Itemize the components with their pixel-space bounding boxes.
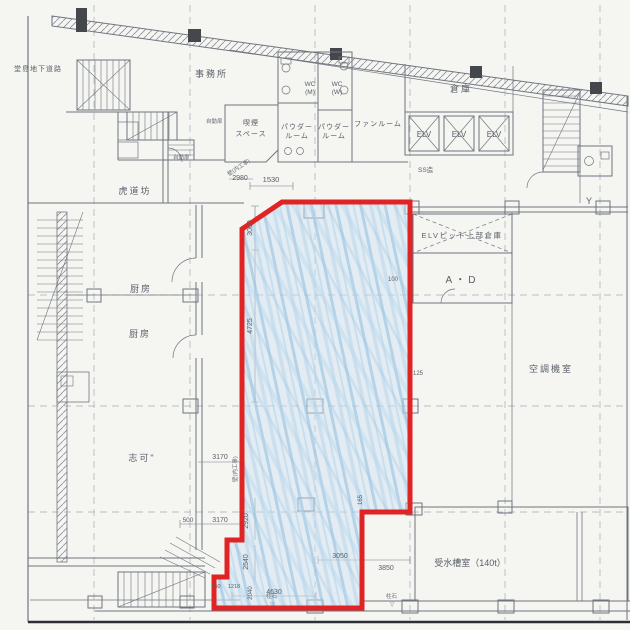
dim-1218: 1218 xyxy=(228,584,240,590)
dim-2980: 2980 xyxy=(232,175,248,182)
room-label-dojima: 堂島地下道路 xyxy=(14,64,62,73)
dim-3850: 3850 xyxy=(378,565,394,572)
dim-2040: 2040 xyxy=(248,586,254,600)
room-label-wc-m-2: (M) xyxy=(305,89,315,96)
grid-marker-y: Y xyxy=(586,196,592,206)
elv-label-2: ELV xyxy=(452,130,467,139)
floorplan-sheet: 堂島地下道路 事務所 喫煙 スペース パウダー ルーム パウダー ルーム WC … xyxy=(0,0,630,630)
room-label-wc-w-1: WC xyxy=(332,81,343,88)
dim-3000: 3000 xyxy=(247,220,254,236)
floorplan-drawing: 堂島地下道路 事務所 喫煙 スペース パウダー ルーム パウダー ルーム WC … xyxy=(0,0,630,630)
dim-100: 100 xyxy=(388,277,399,283)
room-label-ad: A・D xyxy=(446,275,479,286)
dim-2540: 2540 xyxy=(243,554,250,570)
dim-500: 500 xyxy=(183,517,194,524)
room-label-wc-m-1: WC xyxy=(305,81,316,88)
room-label-hvac: 空調機室 xyxy=(529,363,573,374)
room-label-smoking-2: スペース xyxy=(235,130,266,138)
dim-3050: 3050 xyxy=(332,553,348,560)
room-label-wc-w-2: (W) xyxy=(332,89,342,96)
dim-4630: 4630 xyxy=(266,589,282,596)
room-label-office: 事務所 xyxy=(195,68,228,79)
annotation-pillar-2: 柱石 xyxy=(386,592,398,600)
room-label-powder2-2: ルーム xyxy=(322,132,346,140)
annotation-ss: SS造 xyxy=(418,165,434,174)
annotation-wall-note-2: 壁(内工事) xyxy=(231,456,239,482)
room-label-smoking-1: 喫煙 xyxy=(243,118,259,127)
room-label-torado: 虎道坊 xyxy=(118,185,151,196)
room-label-kitchen-2: 厨房 xyxy=(129,328,151,339)
room-label-kitchen-1: 厨房 xyxy=(130,283,152,294)
dim-650: 650 xyxy=(211,584,220,590)
room-label-elv-pit: ELVピット上部倉庫 xyxy=(421,230,502,240)
room-label-powder1-1: パウダー xyxy=(281,122,313,131)
annotation-auto-door-2: 自動扉 xyxy=(173,153,190,161)
room-label-warehouse: 倉庫 xyxy=(450,83,472,94)
dim-165: 165 xyxy=(358,494,364,505)
elv-label-3: ELV xyxy=(487,130,502,139)
dim-3170-b: 3170 xyxy=(212,517,228,524)
dim-1530: 1530 xyxy=(263,175,280,184)
dim-125: 125 xyxy=(413,371,424,377)
room-label-powder2-1: パウダー xyxy=(318,122,350,131)
dim-4725: 4725 xyxy=(247,318,254,334)
lease-area xyxy=(214,202,410,608)
room-label-powder1-2: ルーム xyxy=(285,132,309,140)
room-label-shika: 志可" xyxy=(128,452,155,463)
dim-2920: 2920 xyxy=(243,513,250,529)
annotation-pillar-triangle-2: ▽ xyxy=(390,602,395,608)
room-label-water-tank: 受水槽室（140t） xyxy=(434,557,506,568)
elv-label-1: ELV xyxy=(417,130,432,139)
dim-3170-a: 3170 xyxy=(212,454,228,461)
annotation-auto-door-1: 自動扉 xyxy=(206,117,223,125)
room-label-fanroom: ファンルーム xyxy=(354,120,402,128)
